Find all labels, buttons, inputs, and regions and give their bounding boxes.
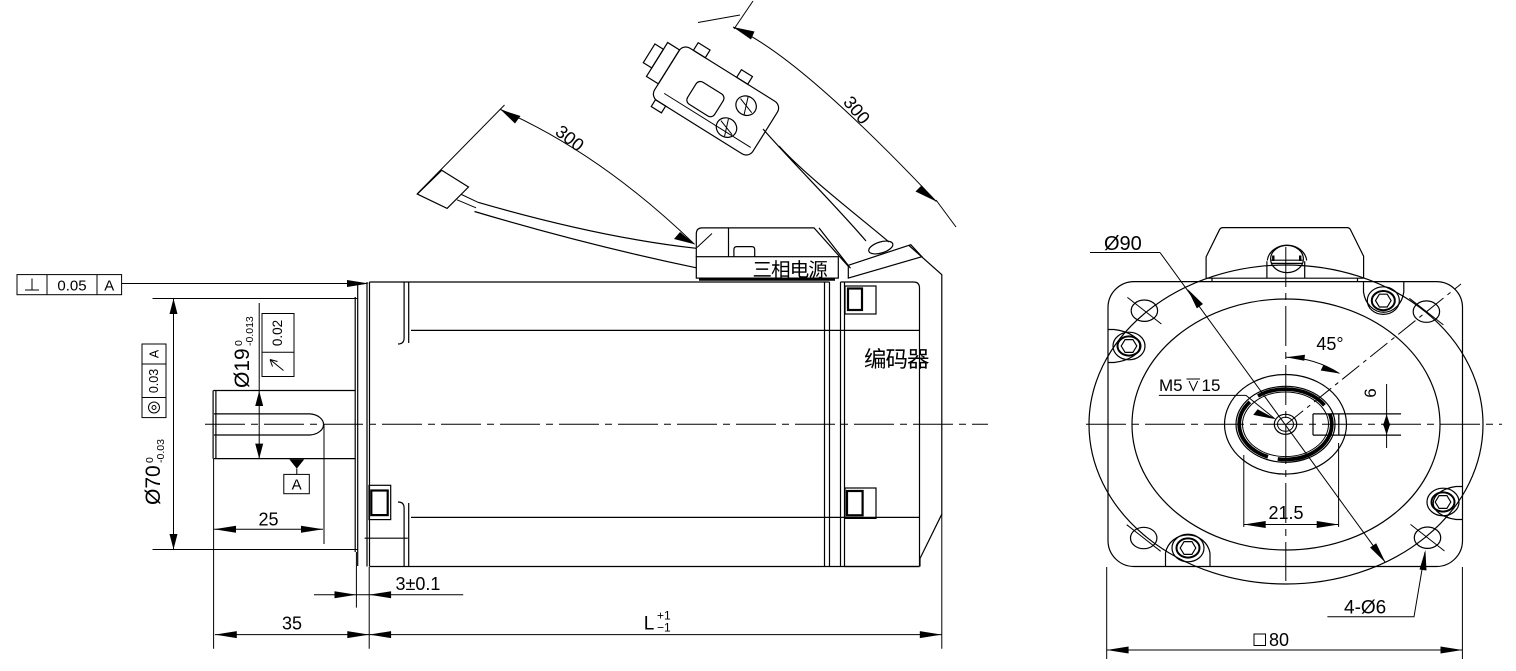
svg-text:-0.03: -0.03 bbox=[155, 439, 167, 463]
svg-text:25: 25 bbox=[258, 510, 278, 530]
svg-text:6: 6 bbox=[1361, 388, 1380, 397]
svg-text:A: A bbox=[104, 278, 114, 295]
svg-text:0.02: 0.02 bbox=[270, 320, 285, 346]
svg-text:Ø19: Ø19 bbox=[231, 348, 254, 388]
svg-text:3±0.1: 3±0.1 bbox=[396, 574, 441, 594]
svg-text:Ø70: Ø70 bbox=[142, 465, 165, 505]
svg-text:Ø90: Ø90 bbox=[1104, 233, 1142, 255]
svg-text:-0.013: -0.013 bbox=[244, 316, 256, 346]
svg-text:4-Ø6: 4-Ø6 bbox=[1344, 598, 1386, 619]
svg-text:0.03: 0.03 bbox=[147, 369, 161, 393]
svg-text:45°: 45° bbox=[1316, 334, 1343, 354]
svg-text:21.5: 21.5 bbox=[1268, 503, 1303, 523]
svg-text:35: 35 bbox=[282, 614, 302, 634]
svg-text:80: 80 bbox=[1269, 630, 1289, 650]
svg-text:A: A bbox=[292, 477, 302, 494]
svg-text:−1: −1 bbox=[657, 621, 671, 635]
svg-text:0.05: 0.05 bbox=[57, 278, 86, 295]
svg-text:15: 15 bbox=[1202, 376, 1221, 395]
svg-text:M5: M5 bbox=[1159, 376, 1183, 395]
svg-text:A: A bbox=[148, 349, 162, 358]
svg-text:L: L bbox=[644, 614, 655, 635]
